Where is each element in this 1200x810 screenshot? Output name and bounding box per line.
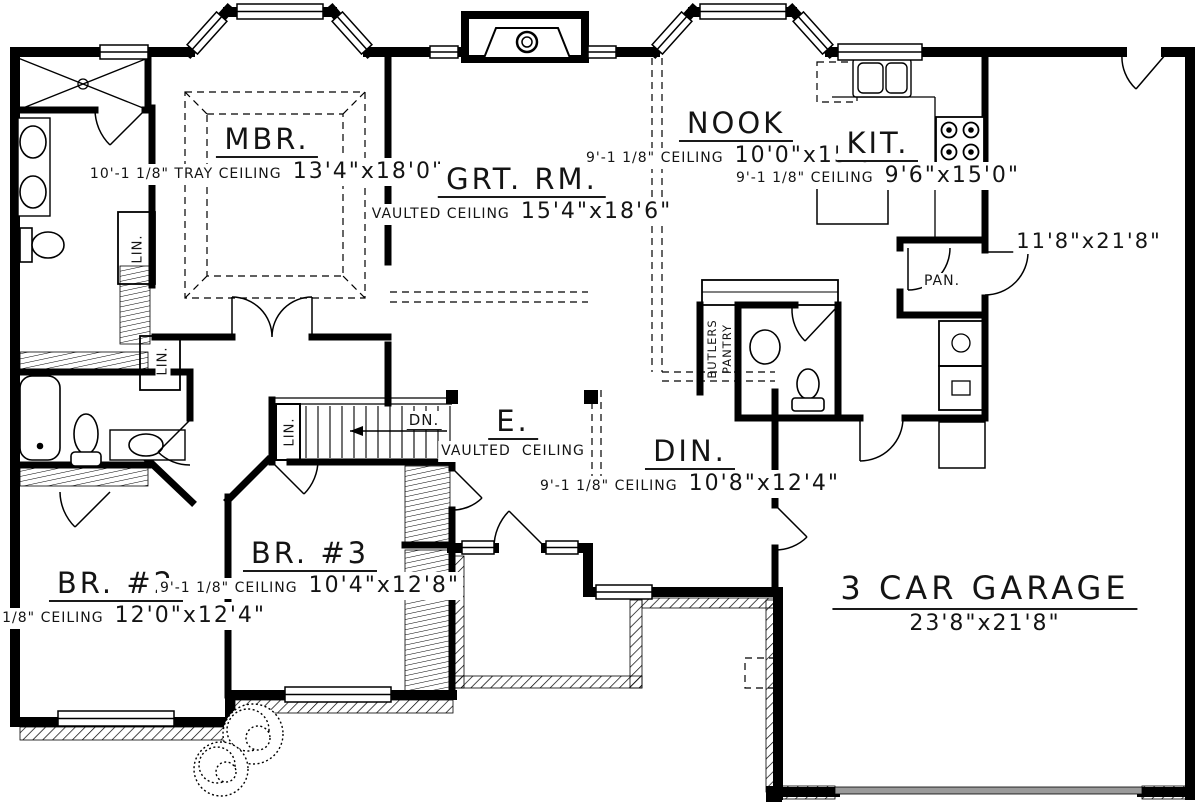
bonus-space-dimensions: 11'8"x21'8": [1013, 228, 1164, 254]
room-size: 10'4"x12'8": [306, 572, 463, 600]
butlers-text-line1: BUTLERS: [705, 319, 720, 378]
room-size: 9'6"x15'0": [882, 162, 1023, 190]
linen-text: LIN.: [131, 233, 146, 266]
garage-door: [835, 787, 1142, 794]
linen-label-1: LIN.: [127, 233, 146, 266]
linen-label-3: LIN.: [279, 416, 298, 449]
linen-text: LIN.: [156, 345, 171, 378]
room-name: GRT. RM.: [438, 164, 606, 198]
room-name: E.: [488, 406, 538, 440]
linen-text: LIN.: [283, 416, 298, 449]
room-ceiling: VAULTED CEILING: [369, 204, 513, 225]
room-ceiling: 9'-1 1/8" CEILING: [583, 148, 727, 169]
pantry-label: PAN.: [922, 270, 962, 289]
room-label-kit: KIT. 9'-1 1/8" CEILING 9'6"x15'0": [733, 128, 1023, 190]
butlers-text-line2: PANTRY: [720, 319, 735, 378]
room-label-grt-rm: GRT. RM. VAULTED CEILING 15'4"x18'6": [369, 164, 675, 226]
butlers-pantry-label: BUTLERS PANTRY: [705, 319, 735, 378]
linen-label-2: LIN.: [152, 345, 171, 378]
down-text: DN.: [407, 411, 442, 430]
room-ceiling: 9'-1 1/8" CEILING: [537, 476, 681, 497]
stairs-down-label: DN.: [407, 410, 442, 429]
fireplace: [465, 15, 585, 59]
room-ceiling: CEILING: [519, 441, 588, 462]
room-name: DIN.: [645, 436, 735, 470]
room-ceiling: 10'-1 1/8" TRAY CEILING: [87, 164, 285, 185]
room-name: MBR.: [216, 124, 317, 158]
room-ceiling: 9'-1 1/8" CEILING: [733, 168, 877, 189]
entry-post: [584, 390, 598, 404]
room-size: 11'8"x21'8": [1013, 228, 1164, 254]
pantry-text: PAN.: [922, 273, 962, 289]
room-size: 23'8"x21'8": [906, 610, 1063, 638]
room-size: 12'0"x12'4": [112, 602, 269, 630]
room-label-entry: E. VAULTED CEILING: [438, 406, 588, 462]
room-ceiling: VAULTED: [438, 441, 514, 462]
entry-post: [446, 390, 458, 404]
room-ceiling: 9'-1 1/8" CEILING: [0, 608, 107, 629]
room-label-garage: 3 CAR GARAGE 23'8"x21'8": [832, 572, 1137, 637]
room-label-br3: BR. #3 9'-1 1/8" CEILING 10'4"x12'8": [157, 538, 463, 600]
room-size: 10'8"x12'4": [686, 470, 843, 498]
floorplan-canvas: MBR. 10'-1 1/8" TRAY CEILING 13'4"x18'0"…: [0, 0, 1200, 810]
room-ceiling: 9'-1 1/8" CEILING: [157, 578, 301, 599]
room-name: BR. #3: [243, 538, 377, 572]
room-size: 15'4"x18'6": [518, 198, 675, 226]
room-name: 3 CAR GARAGE: [832, 572, 1137, 610]
room-name: KIT.: [838, 128, 917, 162]
